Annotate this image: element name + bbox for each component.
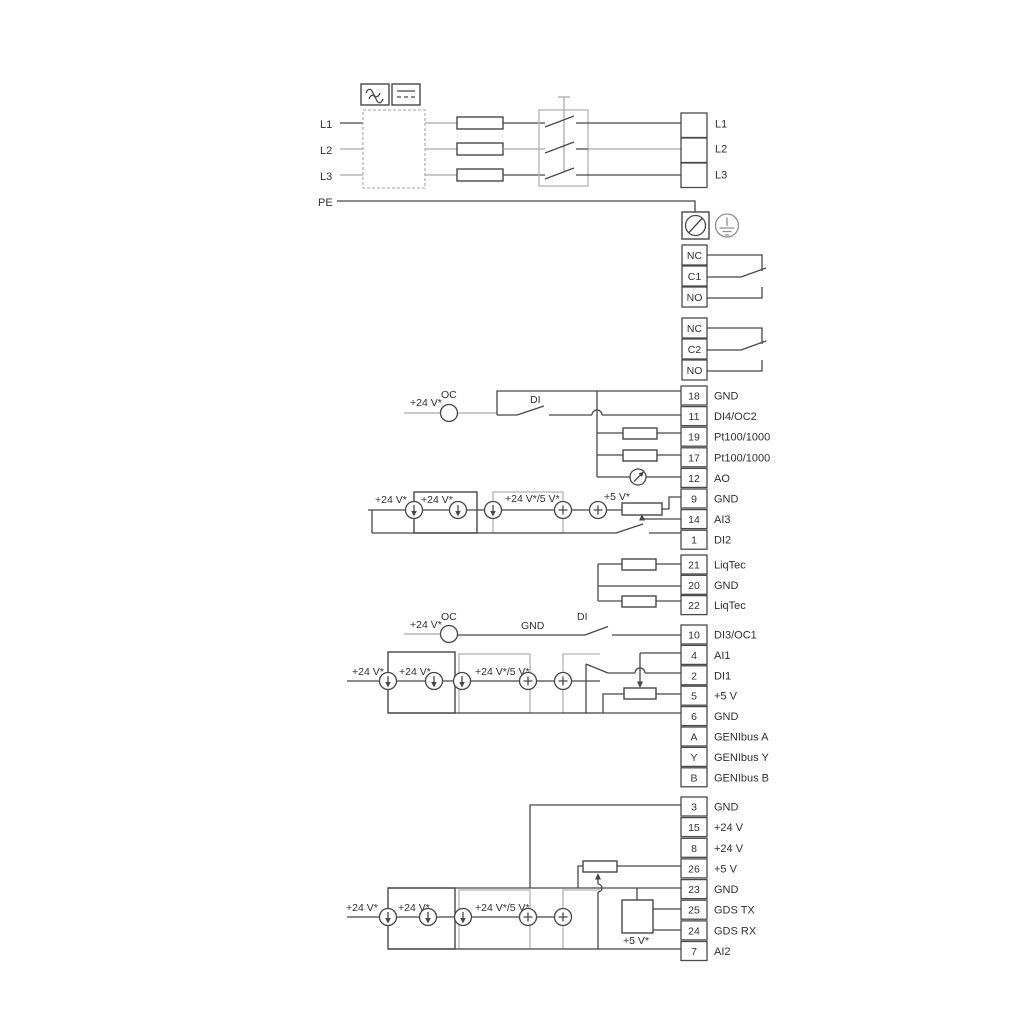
- terminal-label: GND: [714, 494, 739, 506]
- label-plus24: +24 V*: [352, 666, 384, 678]
- terminal-label: GND: [714, 391, 739, 403]
- terminal-number: 25: [688, 905, 700, 917]
- relay1-no: NO: [687, 292, 703, 304]
- label-plus24: +24 V*: [421, 494, 453, 506]
- terminal-number: 7: [691, 946, 697, 958]
- terminal-label: DI3/OC1: [714, 630, 757, 642]
- terminal-number: 9: [691, 494, 697, 506]
- terminal-number: 18: [688, 391, 700, 403]
- terminal-number: 3: [691, 802, 697, 814]
- voltage-source-icon: [520, 673, 537, 690]
- relay2-c2: C2: [688, 344, 702, 356]
- terminal-number: 1: [691, 535, 697, 547]
- label-gnd: GND: [521, 620, 545, 632]
- terminal-number: A: [690, 732, 697, 744]
- liqtec-sensor-icon: [622, 596, 656, 607]
- power-right-l2: L2: [715, 144, 727, 156]
- open-collector-icon: [441, 405, 458, 422]
- terminal-label: +24 V: [714, 822, 744, 834]
- terminal-number: 17: [688, 452, 700, 464]
- terminal-label: Pt100/1000: [714, 432, 770, 444]
- terminal-label: DI2: [714, 535, 731, 547]
- power-right-l3: L3: [715, 170, 727, 182]
- terminal-number: 20: [688, 580, 700, 592]
- label-plus24: +24 V*: [410, 397, 442, 409]
- io-block-3: 3 15 8 26 23 25 24 7 GND +24 V +24 V +5 …: [346, 797, 757, 961]
- terminal-label: DI4/OC2: [714, 411, 757, 423]
- voltage-source-icon: [590, 502, 607, 519]
- di-switch-icon: [497, 406, 544, 415]
- relay1-section: NC C1 NO: [682, 245, 766, 307]
- potentiometer-icon: [622, 503, 662, 515]
- main-switch-icon: [539, 97, 588, 186]
- pt100-resistor-icon: [623, 428, 657, 439]
- label-plus24: +24 V*: [399, 666, 431, 678]
- label-plus24: +24 V*: [346, 902, 378, 914]
- ai2-circuit: +24 V* +24 V* +24 V*/5 V* +5 V*: [346, 805, 681, 949]
- liqtec-section: 21 20 22 LiqTec GND LiqTec: [598, 555, 746, 615]
- screw-terminal-icon: [682, 212, 709, 239]
- terminal-label: AO: [714, 473, 730, 485]
- io-block-2: 10 4 2 5 6 A Y B DI3/OC1 AI1 DI1 +5 V GN…: [347, 611, 769, 787]
- label-plus24: +24 V*: [375, 494, 407, 506]
- terminal-label: GDS TX: [714, 905, 755, 917]
- label-oc: OC: [441, 611, 457, 623]
- earth-icon: [716, 214, 739, 237]
- current-source-icon: [450, 502, 467, 519]
- terminal-label: GND: [714, 884, 739, 896]
- terminal-label: +24 V: [714, 843, 744, 855]
- di2-switch-icon: [616, 524, 643, 533]
- terminal-label: +5 V: [714, 691, 738, 703]
- terminal-label: GENIbus A: [714, 732, 769, 744]
- label-plus5: +5 V*: [604, 491, 630, 503]
- voltage-source-icon: [520, 909, 537, 926]
- terminal-label: GENIbus B: [714, 772, 769, 784]
- terminal-number: 5: [691, 691, 697, 703]
- current-source-icon: [380, 673, 397, 690]
- terminal-number: B: [690, 772, 697, 784]
- current-source-icon: [406, 502, 423, 519]
- terminal-label: +5 V: [714, 863, 738, 875]
- terminal-label: AI1: [714, 650, 731, 662]
- liqtec-sensor-icon: [622, 559, 656, 570]
- potentiometer-icon: [583, 861, 617, 872]
- label-di: DI: [577, 611, 588, 623]
- potentiometer-icon: [624, 688, 656, 699]
- ac-icon: [361, 84, 389, 105]
- terminal-number: 19: [688, 432, 700, 444]
- terminal-label: GDS RX: [714, 925, 757, 937]
- ao-meter-icon: [630, 469, 646, 485]
- pt100-resistor-icon: [623, 450, 657, 461]
- filter-box: [363, 110, 425, 188]
- ai3-circuit: +24 V* +24 V* +24 V*/5 V* +5 V*: [368, 491, 681, 533]
- di-switch-icon: [585, 627, 608, 636]
- terminal-number: 12: [688, 473, 700, 485]
- power-left-l1: L1: [320, 119, 332, 131]
- voltage-source-icon: [555, 673, 572, 690]
- relay1-nc: NC: [687, 250, 703, 262]
- terminal-number: 6: [691, 711, 697, 723]
- label-oc: OC: [441, 389, 457, 401]
- terminal-number: 14: [688, 514, 700, 526]
- terminal-number: 4: [691, 650, 697, 662]
- open-collector-icon: [441, 626, 458, 643]
- terminal-cell-l2: [681, 138, 707, 163]
- terminal-number: 11: [689, 411, 700, 423]
- relay1-c1: C1: [688, 271, 702, 283]
- terminal-label: GENIbus Y: [714, 752, 769, 764]
- fuse-icon: [457, 143, 503, 155]
- current-source-icon: [485, 502, 502, 519]
- di4-circuit: +24 V* OC DI: [404, 389, 681, 485]
- terminal-label: GND: [714, 802, 739, 814]
- relay2-nc: NC: [687, 323, 703, 335]
- relay1-contact-icon: [707, 255, 766, 298]
- dc-icon: [392, 84, 420, 105]
- terminal-label: Pt100/1000: [714, 452, 770, 464]
- terminal-label: GND: [714, 580, 739, 592]
- terminal-number: 21: [688, 560, 700, 572]
- di1-switch-icon: [586, 664, 608, 713]
- power-left-l3: L3: [320, 171, 332, 183]
- wiring-diagram: L1 L2 L3 PE L1 L2 L3: [0, 0, 1024, 1024]
- label-plus24: +24 V*: [410, 619, 442, 631]
- io-block-1: 18 11 19 17 12 9 14 1 GND DI4/OC2 Pt100/…: [368, 386, 770, 549]
- relay2-no: NO: [687, 365, 703, 377]
- terminal-number: 8: [691, 843, 697, 855]
- terminal-number: Y: [690, 752, 697, 764]
- terminal-label: LiqTec: [714, 560, 746, 572]
- current-source-icon: [380, 909, 397, 926]
- terminal-number: 15: [688, 822, 700, 834]
- ai1-circuit: +24 V* +24 V* +24 V*/5 V*: [347, 652, 681, 713]
- relay2-section: NC C2 NO: [682, 318, 766, 380]
- terminal-number: 2: [691, 670, 697, 682]
- gds-module-box: [622, 888, 681, 933]
- power-section: L1 L2 L3 PE L1 L2 L3: [318, 84, 739, 239]
- terminal-number: 22: [688, 600, 700, 612]
- label-plus5: +5 V*: [623, 935, 649, 947]
- current-source-icon: [455, 909, 472, 926]
- current-source-icon: [454, 673, 471, 690]
- current-source-icon: [420, 909, 437, 926]
- terminal-label: DI1: [714, 670, 731, 682]
- label-plus24-5: +24 V*/5 V*: [505, 493, 560, 505]
- fuse-icon: [457, 117, 503, 129]
- terminal-number: 26: [688, 863, 700, 875]
- terminal-label: AI2: [714, 946, 731, 958]
- fuse-icon: [457, 169, 503, 181]
- power-right-l1: L1: [715, 119, 727, 131]
- power-left-pe: PE: [318, 197, 333, 209]
- voltage-source-icon: [555, 502, 572, 519]
- terminal-cell-l3: [681, 163, 707, 188]
- power-left-l2: L2: [320, 145, 332, 157]
- voltage-source-icon: [555, 909, 572, 926]
- terminal-label: AI3: [714, 514, 731, 526]
- terminal-cell-l1: [681, 113, 707, 138]
- terminal-number: 24: [688, 925, 700, 937]
- di3-circuit: +24 V* OC GND DI: [404, 611, 681, 643]
- terminal-number: 10: [688, 630, 700, 642]
- terminal-label: GND: [714, 711, 739, 723]
- terminal-number: 23: [688, 884, 700, 896]
- relay2-contact-icon: [707, 328, 766, 371]
- terminal-label: LiqTec: [714, 600, 746, 612]
- current-source-icon: [426, 673, 443, 690]
- label-di: DI: [530, 394, 541, 406]
